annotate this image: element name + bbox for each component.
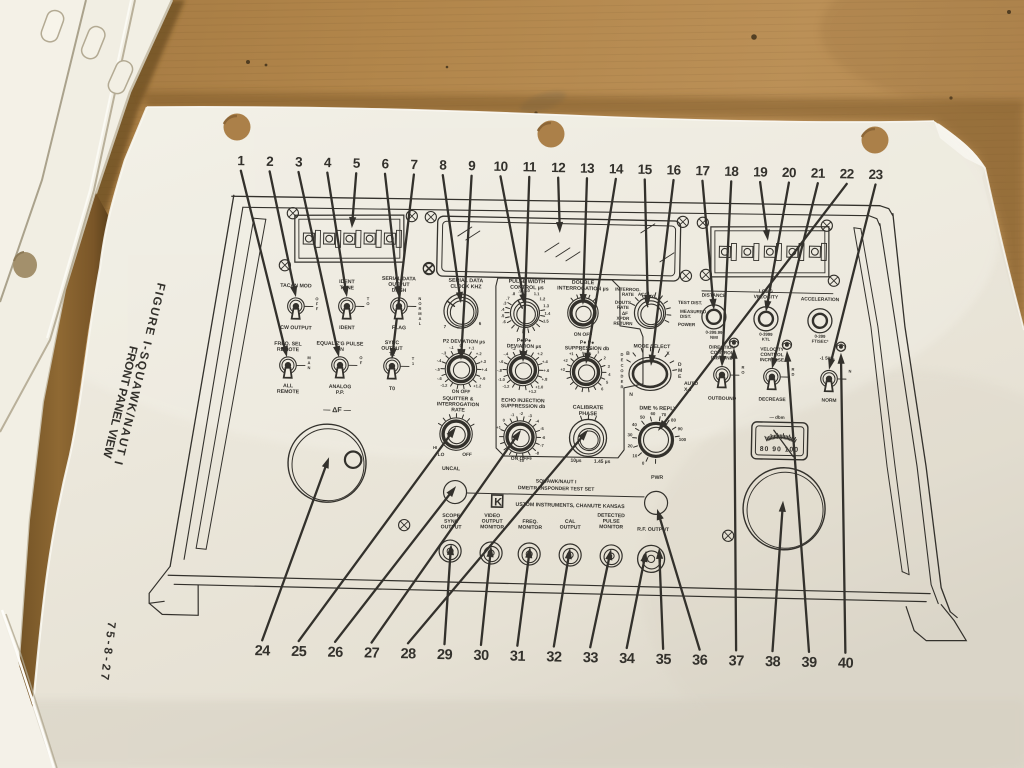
svg-text:E: E [621,379,624,384]
svg-text:19: 19 [753,164,767,179]
svg-text:LO: LO [438,452,445,458]
svg-text:LONG: LONG [759,289,773,295]
svg-text:MONITOR: MONITOR [480,524,504,531]
svg-text:6: 6 [381,156,389,171]
svg-text:RATE: RATE [451,407,465,413]
svg-text:80 90 100: 80 90 100 [760,446,799,454]
svg-text:T2: T2 [389,352,395,358]
svg-text:K: K [494,496,502,508]
svg-text:X-Y: X-Y [684,387,693,393]
svg-text:INTERROGATION µs: INTERROGATION µs [557,285,609,292]
svg-text:40: 40 [838,656,854,672]
svg-text:39: 39 [801,655,817,671]
svg-text:35: 35 [656,652,672,668]
svg-text:ON: ON [336,347,344,353]
svg-text:INBOUND: INBOUND [711,355,734,360]
svg-text:70: 70 [661,412,667,417]
svg-text:+1.2: +1.2 [528,389,537,394]
svg-text:ON OFF: ON OFF [574,332,593,338]
svg-text:NORM: NORM [822,398,837,404]
svg-text:HI: HI [433,445,437,450]
svg-text:REMOTE: REMOTE [277,389,300,395]
svg-text:10: 10 [493,159,507,174]
svg-text:RETURN: RETURN [613,321,633,326]
svg-text:17: 17 [695,163,709,178]
svg-text:7: 7 [410,157,417,172]
svg-text:DECREASE: DECREASE [758,396,786,403]
svg-text:+1.0: +1.0 [535,384,544,389]
svg-text:50: 50 [640,415,646,420]
svg-text:+.4: +.4 [542,359,549,364]
svg-text:100: 100 [679,437,687,442]
svg-text:26: 26 [327,645,343,661]
svg-text:+.6: +.6 [544,368,551,373]
svg-text:E: E [621,357,624,362]
svg-text:4: 4 [324,155,332,170]
svg-text:31: 31 [510,649,526,665]
svg-text:N: N [629,392,633,398]
svg-text:34: 34 [619,651,635,667]
svg-text:40: 40 [632,422,638,427]
svg-text:R: R [621,384,624,389]
svg-text:N: N [848,369,851,374]
svg-text:D: D [792,372,795,377]
svg-text:+1.2: +1.2 [473,383,482,388]
svg-text:TACAN MOD: TACAN MOD [280,283,312,290]
svg-text:FLAG: FLAG [392,325,406,331]
svg-text:10: 10 [632,453,638,458]
svg-text:25: 25 [291,644,307,660]
svg-text:30: 30 [627,432,633,437]
svg-text:CLOCK KHZ: CLOCK KHZ [450,284,482,291]
svg-text:— dbm: — dbm [769,415,784,420]
svg-text:O: O [620,368,623,373]
svg-text:TONE: TONE [340,285,355,291]
svg-text:-1.2: -1.2 [440,383,448,388]
svg-text:37: 37 [728,653,744,669]
svg-text:MONITOR: MONITOR [599,524,623,531]
svg-text:MONITOR: MONITOR [518,524,542,531]
svg-text:SUPPRESSION db: SUPPRESSION db [501,403,546,410]
svg-text:DISTANCE: DISTANCE [702,293,727,300]
svg-text:NMI: NMI [710,335,718,340]
svg-text:32: 32 [546,649,562,665]
svg-text:28: 28 [400,646,416,662]
svg-text:+.2: +.2 [537,351,544,356]
svg-text:N: N [308,365,311,370]
svg-text:24: 24 [255,643,271,659]
svg-text:13: 13 [580,161,595,176]
svg-text:21: 21 [811,166,826,181]
svg-text:36: 36 [692,652,708,668]
svg-text:5: 5 [353,156,361,171]
svg-text:38: 38 [765,654,781,670]
svg-text:10µs: 10µs [570,458,581,464]
svg-text:16: 16 [666,162,681,177]
svg-text:CW OUTPUT: CW OUTPUT [280,325,312,332]
svg-text:UNCAL: UNCAL [442,466,461,472]
svg-text:POWER: POWER [678,322,696,327]
svg-text:+.1: +.1 [468,345,475,350]
svg-text:14: 14 [609,161,624,176]
svg-text:33: 33 [583,650,599,666]
svg-text:B: B [626,351,630,357]
svg-text:3: 3 [295,154,303,169]
svg-text:-1.2: -1.2 [502,384,510,389]
svg-text:DIST.: DIST. [680,314,691,319]
svg-text:1.3: 1.3 [543,303,550,308]
svg-text:O: O [741,370,744,375]
svg-text:TEST DIST.: TEST DIST. [678,300,702,306]
svg-text:C: C [621,363,624,368]
svg-text:MODE SELECT: MODE SELECT [633,343,671,350]
svg-text:ACCELERATION: ACCELERATION [801,296,840,303]
svg-text:22: 22 [840,166,854,181]
svg-text:REMOTE: REMOTE [277,347,300,353]
svg-text:18: 18 [724,164,739,179]
svg-text:— ΔF —: — ΔF — [323,405,352,415]
svg-text:+.3: +.3 [480,359,487,364]
svg-text:11: 11 [523,159,538,174]
svg-text:1: 1 [237,153,245,168]
svg-text:12: 12 [551,160,565,175]
svg-text:OUTBOUND: OUTBOUND [708,396,737,403]
svg-text:OFF: OFF [462,452,472,458]
svg-text:R.F. OUTPUT: R.F. OUTPUT [637,527,670,534]
svg-text:ON OFF: ON OFF [511,456,530,462]
svg-text:+.8: +.8 [542,377,549,382]
svg-text:15: 15 [638,162,653,177]
svg-text:DASH: DASH [392,288,407,294]
svg-text:OUTPUT: OUTPUT [441,524,463,530]
svg-text:80: 80 [671,417,677,422]
svg-text:DME % REPLY: DME % REPLY [639,406,677,413]
svg-text:1.4: 1.4 [545,311,552,316]
svg-text:D: D [621,374,624,379]
svg-text:D: D [620,352,623,357]
svg-text:30: 30 [473,648,489,664]
svg-text:ACC: ACC [638,292,649,297]
svg-text:60: 60 [650,411,656,416]
svg-text:1.5: 1.5 [543,318,550,323]
svg-text:2: 2 [266,154,273,169]
svg-text:90: 90 [678,426,684,431]
svg-text:P.P.: P.P. [336,390,345,396]
svg-text:29: 29 [437,647,453,663]
svg-text:+.4: +.4 [482,367,489,372]
svg-text:PWR: PWR [651,475,663,481]
svg-text:20: 20 [782,165,796,180]
svg-text:+.2: +.2 [476,351,483,356]
svg-text:8: 8 [439,158,447,173]
svg-text:20: 20 [628,443,634,448]
svg-text:-1 50%: -1 50% [820,356,835,361]
svg-text:O: O [366,301,369,306]
svg-text:INCREASE: INCREASE [760,357,784,363]
svg-text:+.6: +.6 [480,376,487,381]
svg-text:KTL: KTL [762,337,771,342]
svg-text:1.0: 1.0 [524,288,531,293]
svg-text:23: 23 [868,167,883,182]
svg-text:VELOCITY: VELOCITY [754,294,779,301]
svg-text:RATE: RATE [617,305,629,310]
svg-text:FT/SEC²: FT/SEC² [812,339,829,344]
svg-text:RATE: RATE [622,292,634,297]
svg-text:-1.0: -1.0 [498,377,506,382]
svg-text:SQUAWK/NAUT I: SQUAWK/NAUT I [536,479,577,486]
svg-text:1.45 µs: 1.45 µs [594,459,611,465]
svg-text:1.2: 1.2 [540,296,547,301]
svg-text:27: 27 [364,645,380,661]
svg-text:IDENT: IDENT [339,325,356,331]
svg-text:OUTPUT: OUTPUT [560,524,582,530]
svg-text:T0: T0 [389,386,395,392]
svg-text:ON OFF: ON OFF [452,389,471,395]
svg-text:9: 9 [468,158,475,173]
